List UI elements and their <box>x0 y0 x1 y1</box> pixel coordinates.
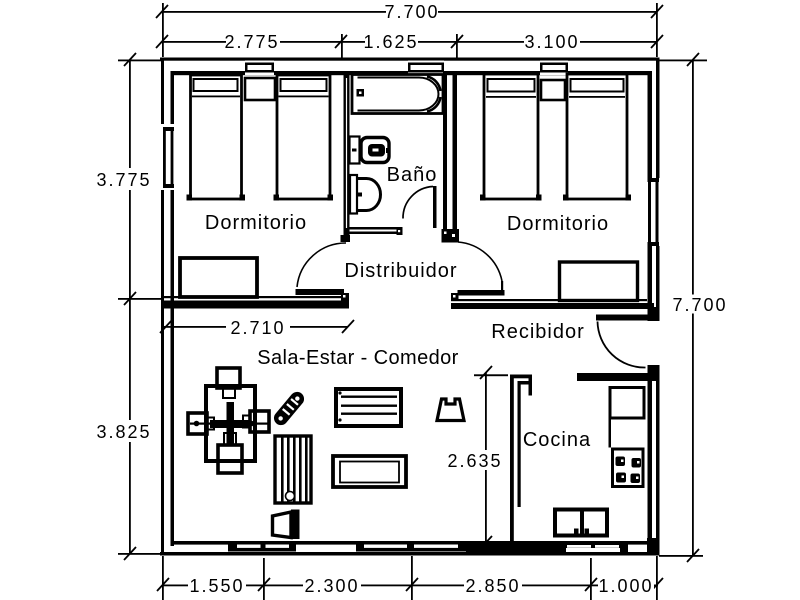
svg-text:Recibidor: Recibidor <box>491 321 584 343</box>
svg-text:Dormitorio: Dormitorio <box>205 212 307 234</box>
svg-text:2.850: 2.850 <box>465 576 520 596</box>
svg-text:Cocina: Cocina <box>523 429 591 451</box>
svg-text:3.100: 3.100 <box>524 32 579 52</box>
svg-text:2.300: 2.300 <box>304 576 359 596</box>
svg-text:1.625: 1.625 <box>363 32 418 52</box>
svg-text:7.700: 7.700 <box>384 2 439 22</box>
svg-text:2.775: 2.775 <box>224 32 279 52</box>
svg-text:3.825: 3.825 <box>96 422 151 442</box>
svg-text:2.710: 2.710 <box>230 318 285 338</box>
svg-text:3.775: 3.775 <box>96 170 151 190</box>
svg-text:7.700: 7.700 <box>672 295 727 315</box>
svg-text:Sala-Estar - Comedor: Sala-Estar - Comedor <box>257 347 458 369</box>
svg-text:2.635: 2.635 <box>447 451 502 471</box>
svg-text:Baño: Baño <box>387 164 438 186</box>
svg-text:Dormitorio: Dormitorio <box>507 213 609 235</box>
svg-text:1.000: 1.000 <box>598 576 653 596</box>
svg-text:1.550: 1.550 <box>189 576 244 596</box>
svg-text:Distribuidor: Distribuidor <box>344 260 457 282</box>
